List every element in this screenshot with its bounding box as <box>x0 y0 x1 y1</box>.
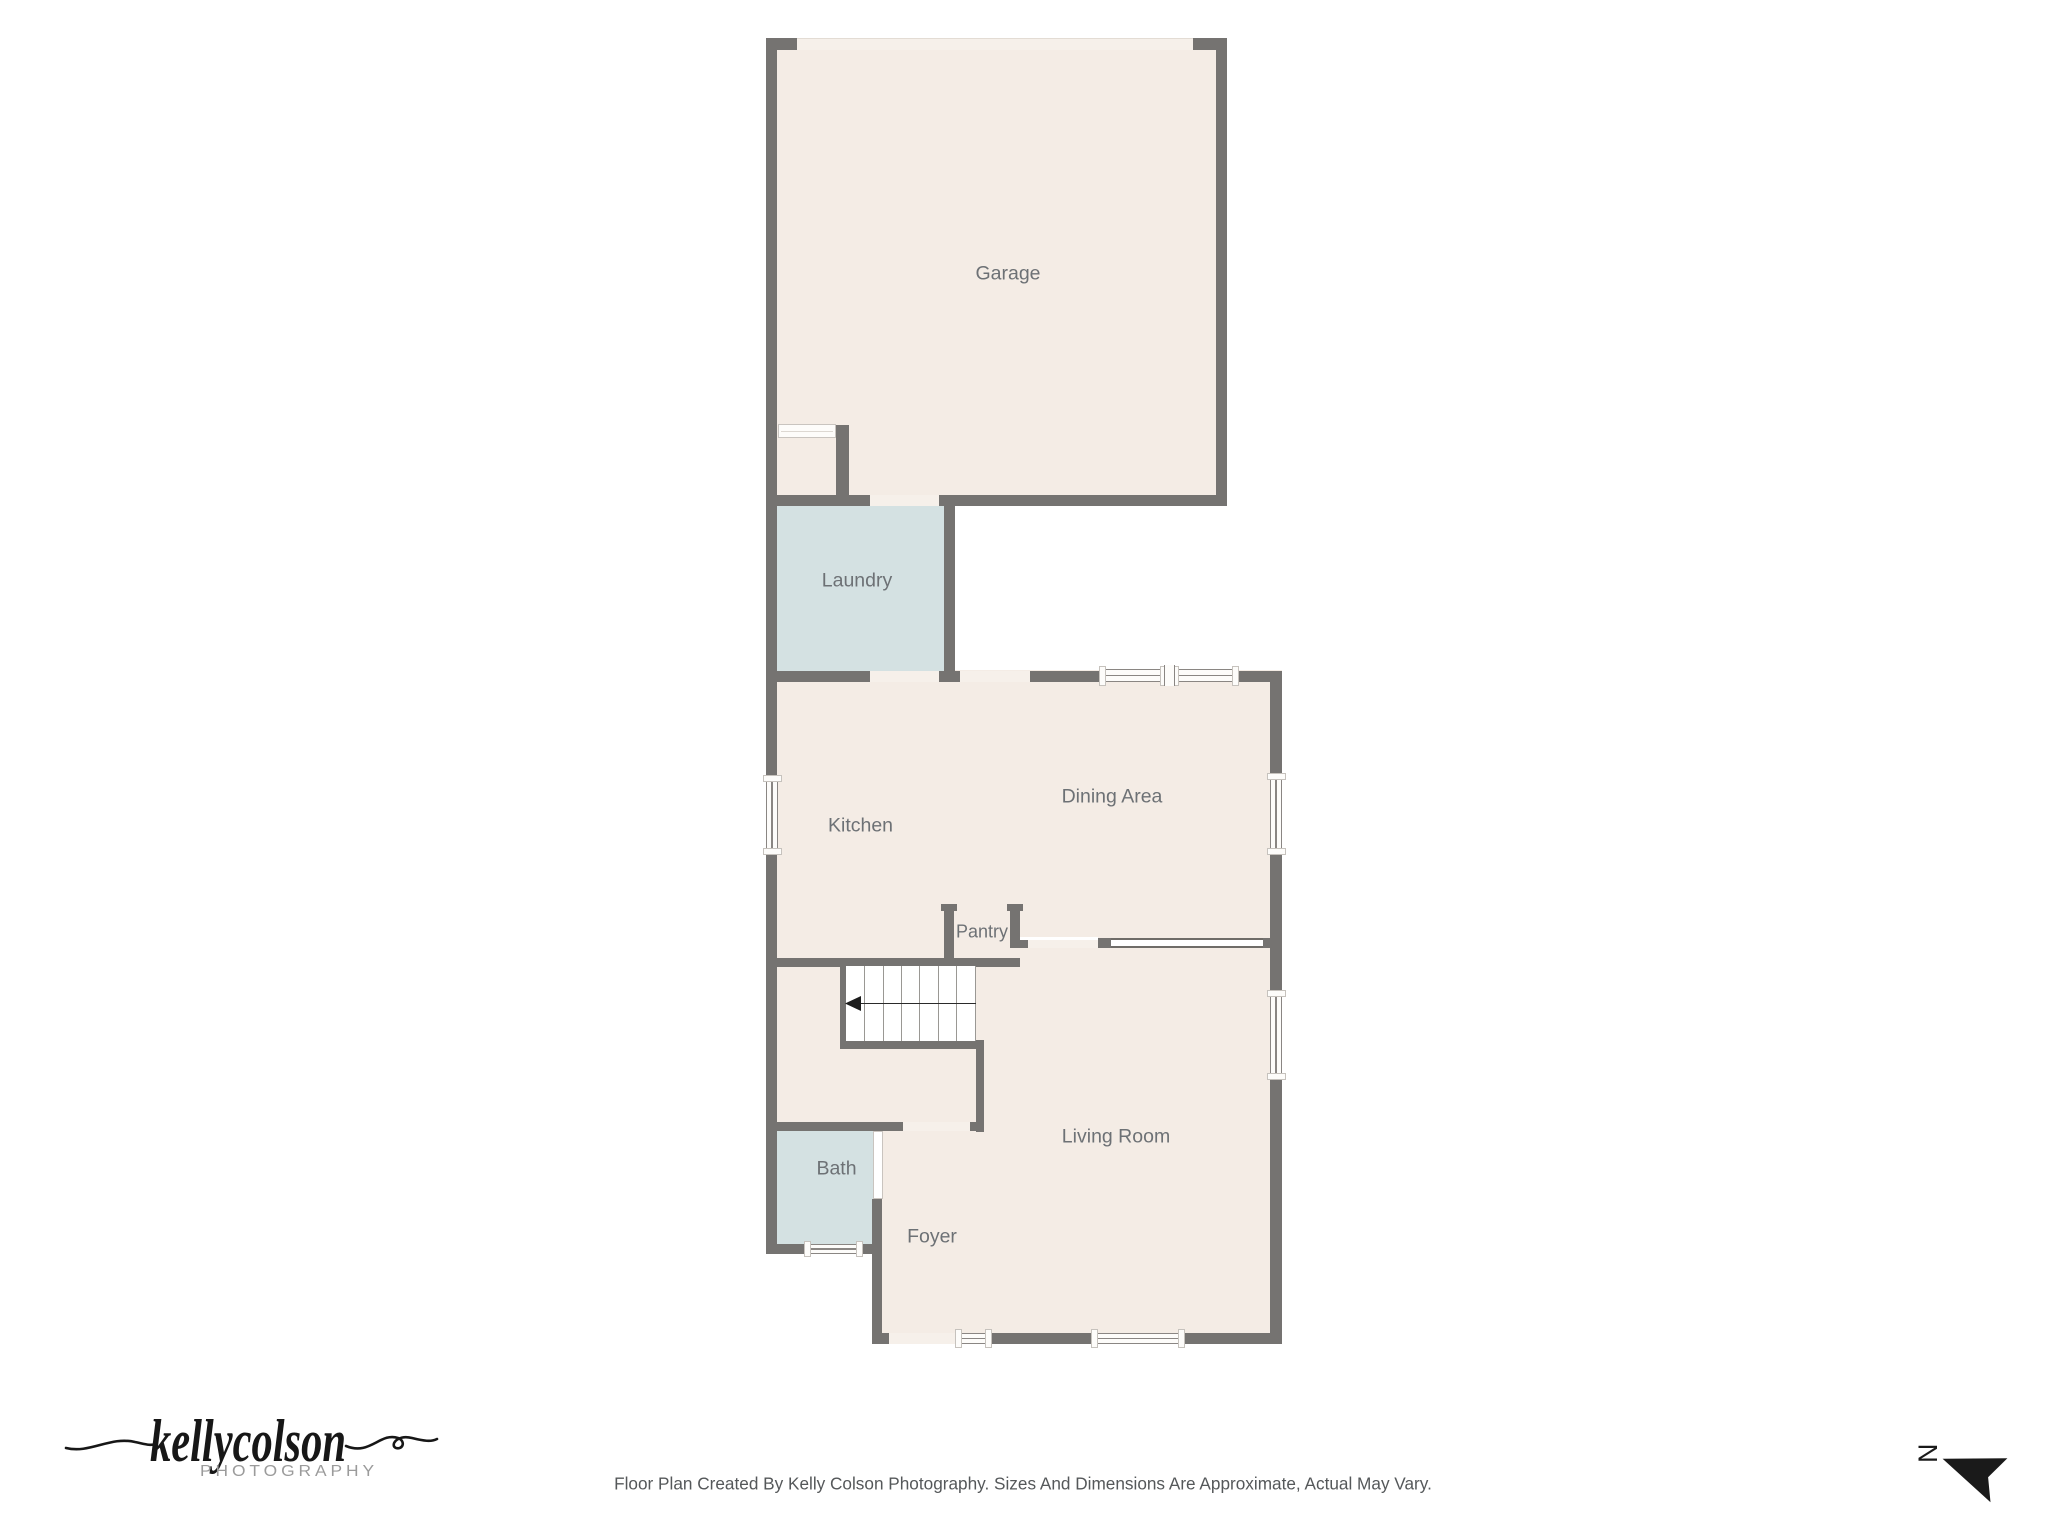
svg-text:PHOTOGRAPHY: PHOTOGRAPHY <box>200 1463 378 1480</box>
svg-text:N: N <box>1913 1444 1943 1464</box>
